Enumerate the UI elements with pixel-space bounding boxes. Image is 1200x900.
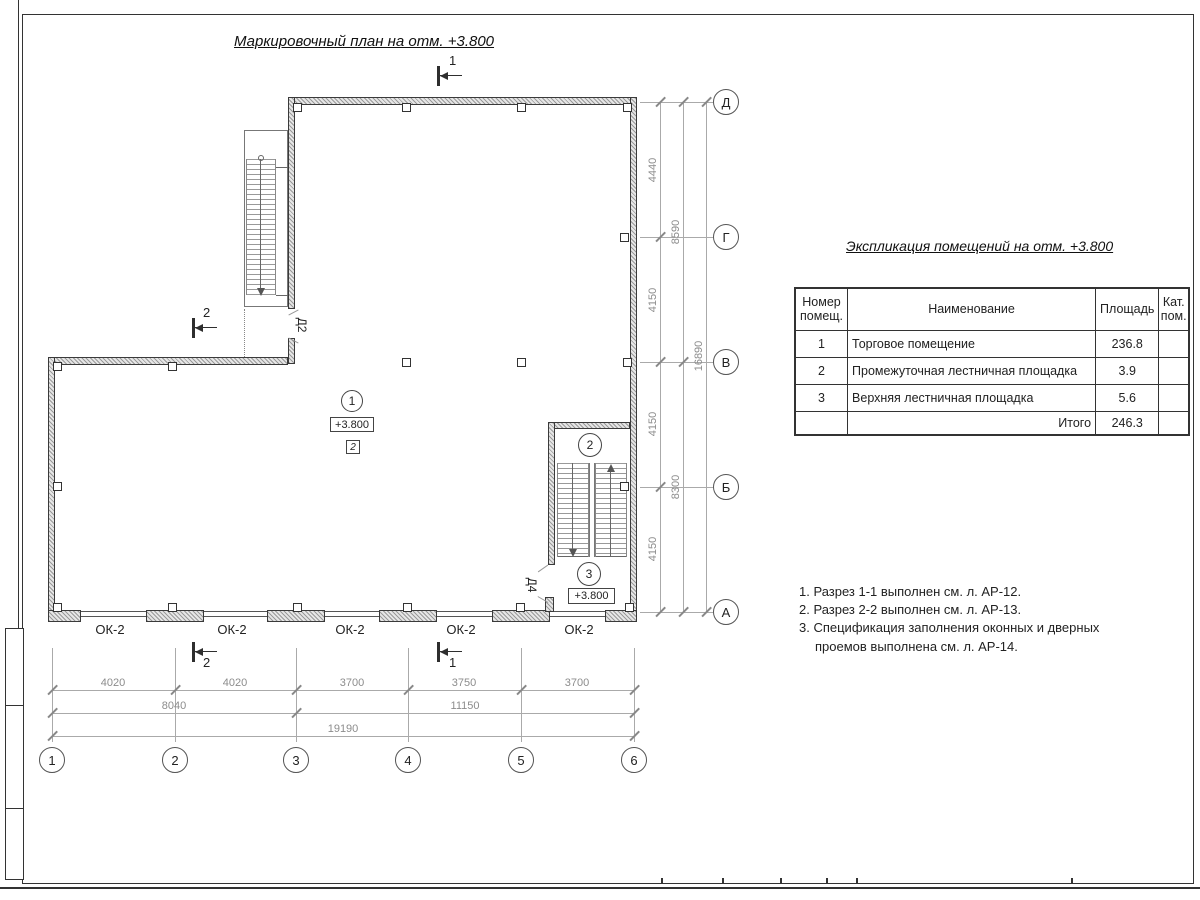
- ext-line-axis-d: [640, 102, 713, 103]
- note-line: 1. Разрез 1-1 выполнен см. л. АР-12.: [799, 583, 1099, 601]
- cell-name: Торговое помещение: [848, 330, 1096, 357]
- column: [620, 482, 629, 491]
- ext-line-axis-6: [634, 648, 635, 742]
- room2-tag: 2: [578, 433, 602, 457]
- table-row: 1 Торговое помещение 236.8: [795, 330, 1189, 357]
- section1-top-arrow: [440, 72, 448, 80]
- note-line: проемов выполнена см. л. АР-14.: [799, 638, 1099, 656]
- axis-bubble-b: Б: [713, 474, 739, 500]
- col-header-area: Площадь: [1096, 288, 1159, 330]
- axis-bubble-g: Г: [713, 224, 739, 250]
- dim-value: 16890: [693, 334, 705, 378]
- window-label: ОК-2: [328, 622, 372, 637]
- table-total-row: Итого 246.3: [795, 411, 1189, 435]
- wall-d2-jamb: [288, 338, 295, 364]
- column: [168, 603, 177, 612]
- column: [53, 482, 62, 491]
- axis-bubble-1: 1: [39, 747, 65, 773]
- section1-bottom-arrow: [440, 648, 448, 656]
- dim-value: 19190: [321, 723, 365, 735]
- section2-top-label: 2: [203, 305, 210, 320]
- section2-bottom-label: 2: [203, 655, 210, 670]
- stairwell-top-wall: [548, 422, 630, 429]
- column: [623, 358, 632, 367]
- column: [620, 233, 629, 242]
- titleblock-tick-4: [826, 878, 828, 884]
- dim-value: 4150: [647, 529, 659, 569]
- column: [402, 103, 411, 112]
- dim-value: 8300: [670, 467, 682, 507]
- ext-stair-hidden-edge: [244, 309, 245, 357]
- dim-value: 3700: [332, 677, 372, 689]
- int-stair-arrow-down: [569, 549, 577, 557]
- cell-area: 3.9: [1096, 357, 1159, 384]
- axis-bubble-d: Д: [713, 89, 739, 115]
- titleblock-top-line: [0, 887, 1200, 889]
- column: [516, 603, 525, 612]
- dim-value: 4020: [93, 677, 133, 689]
- ext-line-axis-3: [296, 648, 297, 742]
- room1-tag: 1: [341, 390, 363, 412]
- cell-total-area: 246.3: [1096, 411, 1159, 435]
- dim-chain-right-1: [660, 102, 661, 612]
- dim-value: 4150: [647, 404, 659, 444]
- int-stair-arrow-up: [607, 464, 615, 472]
- column: [168, 362, 177, 371]
- dim-value: 4440: [647, 150, 659, 190]
- cell-area: 236.8: [1096, 330, 1159, 357]
- cell-cat: [1159, 384, 1189, 411]
- column: [293, 103, 302, 112]
- col-header-num: Номер помещ.: [795, 288, 848, 330]
- ext-line-axis-a: [640, 612, 713, 613]
- titleblock-tick-6: [1071, 878, 1073, 884]
- drawing-notes: 1. Разрез 1-1 выполнен см. л. АР-12. 2. …: [799, 583, 1099, 656]
- axis-bubble-2: 2: [162, 747, 188, 773]
- column: [517, 358, 526, 367]
- sheet-left-margin-line: [18, 0, 19, 628]
- ext-stair-flight: [246, 159, 276, 295]
- dim-chain-right-3: [706, 102, 707, 612]
- titleblock-tick-3: [780, 878, 782, 884]
- dim-value: 3750: [444, 677, 484, 689]
- titleblock-tick-5: [856, 878, 858, 884]
- margin-box-1: [5, 628, 24, 707]
- cell-num: 3: [795, 384, 848, 411]
- ext-line-axis-1: [52, 648, 53, 742]
- wall-top: [288, 97, 637, 105]
- int-stair-flight-right: [595, 463, 627, 557]
- col-header-name: Наименование: [848, 288, 1096, 330]
- section1-bottom-label: 1: [449, 655, 456, 670]
- column: [293, 603, 302, 612]
- window-label: ОК-2: [88, 622, 132, 637]
- ext-line-axis-2: [175, 648, 176, 742]
- column: [53, 362, 62, 371]
- ext-stair-arrow-down: [257, 288, 265, 296]
- dim-value: 3700: [557, 677, 597, 689]
- plan-title: Маркировочный план на отм. +3.800: [234, 33, 494, 50]
- axis-bubble-a: А: [713, 599, 739, 625]
- column: [517, 103, 526, 112]
- cell-name: Промежуточная лестничная площадка: [848, 357, 1096, 384]
- column: [623, 103, 632, 112]
- int-stair-centerline-left: [572, 463, 573, 551]
- wall-upper-left: [288, 97, 295, 309]
- ext-stair-start-circle: [258, 155, 264, 161]
- section1-top-label: 1: [449, 53, 456, 68]
- window-label: ОК-2: [210, 622, 254, 637]
- window-label: ОК-2: [439, 622, 483, 637]
- room-schedule-table: Номер помещ. Наименование Площадь Кат. п…: [794, 287, 1190, 436]
- cell-cat: [1159, 357, 1189, 384]
- section2-top-arrow: [195, 324, 203, 332]
- titleblock-tick-1: [661, 878, 663, 884]
- ext-line-axis-4: [408, 648, 409, 742]
- column: [53, 603, 62, 612]
- cell-total-label: Итого: [848, 411, 1096, 435]
- dim-value: 11150: [443, 700, 487, 712]
- ext-stair-centerline: [260, 159, 261, 291]
- cell-num: 1: [795, 330, 848, 357]
- room1-finish-mark: 2: [346, 440, 360, 454]
- section2-bottom-arrow: [195, 648, 203, 656]
- int-stair-centerline-right: [610, 471, 611, 557]
- stairwell-left-wall: [548, 422, 555, 565]
- dim-chain-bottom-2: [52, 713, 634, 714]
- dim-value: 4150: [647, 280, 659, 320]
- cell-area: 5.6: [1096, 384, 1159, 411]
- ext-line-axis-5: [521, 648, 522, 742]
- ext-stair-landing-line-top: [276, 167, 288, 168]
- door-label-d2: Д2: [295, 308, 309, 342]
- room1-elevation: +3.800: [330, 417, 374, 432]
- ext-stair-landing-line-bottom: [276, 295, 288, 296]
- axis-bubble-4: 4: [395, 747, 421, 773]
- schedule-title: Экспликация помещений на отм. +3.800: [846, 238, 1113, 254]
- cell-num-empty: [795, 411, 848, 435]
- margin-box-2: [5, 705, 24, 810]
- cell-name: Верхняя лестничная площадка: [848, 384, 1096, 411]
- axis-bubble-6: 6: [621, 747, 647, 773]
- axis-bubble-v: В: [713, 349, 739, 375]
- cell-cat: [1159, 330, 1189, 357]
- dim-chain-bottom-3: [52, 736, 634, 737]
- dim-chain-right-2: [683, 102, 684, 612]
- table-row: 3 Верхняя лестничная площадка 5.6: [795, 384, 1189, 411]
- table-row: 2 Промежуточная лестничная площадка 3.9: [795, 357, 1189, 384]
- dim-value: 8590: [670, 212, 682, 252]
- column: [402, 358, 411, 367]
- column: [625, 603, 634, 612]
- axis-bubble-5: 5: [508, 747, 534, 773]
- int-stair-flight-left: [557, 463, 589, 557]
- margin-box-3: [5, 808, 24, 880]
- note-line: 3. Спецификация заполнения оконных и две…: [799, 619, 1099, 637]
- column: [403, 603, 412, 612]
- note-line: 2. Разрез 2-2 выполнен см. л. АР-13.: [799, 601, 1099, 619]
- axis-bubble-3: 3: [283, 747, 309, 773]
- cell-num: 2: [795, 357, 848, 384]
- cell-cat: [1159, 411, 1189, 435]
- int-stair-divider: [589, 463, 595, 557]
- room3-elevation: +3.800: [568, 588, 615, 604]
- dim-value: 8040: [154, 700, 194, 712]
- dim-value: 4020: [215, 677, 255, 689]
- window-label: ОК-2: [557, 622, 601, 637]
- titleblock-tick-2: [722, 878, 724, 884]
- room3-tag: 3: [577, 562, 601, 586]
- sheet-frame: [22, 14, 1194, 884]
- col-header-cat: Кат. пом.: [1159, 288, 1189, 330]
- stairwell-d4-jamb: [545, 597, 554, 612]
- dim-chain-bottom-1: [52, 690, 634, 691]
- drawing-sheet: Маркировочный план на отм. +3.800 Экспли…: [0, 0, 1200, 900]
